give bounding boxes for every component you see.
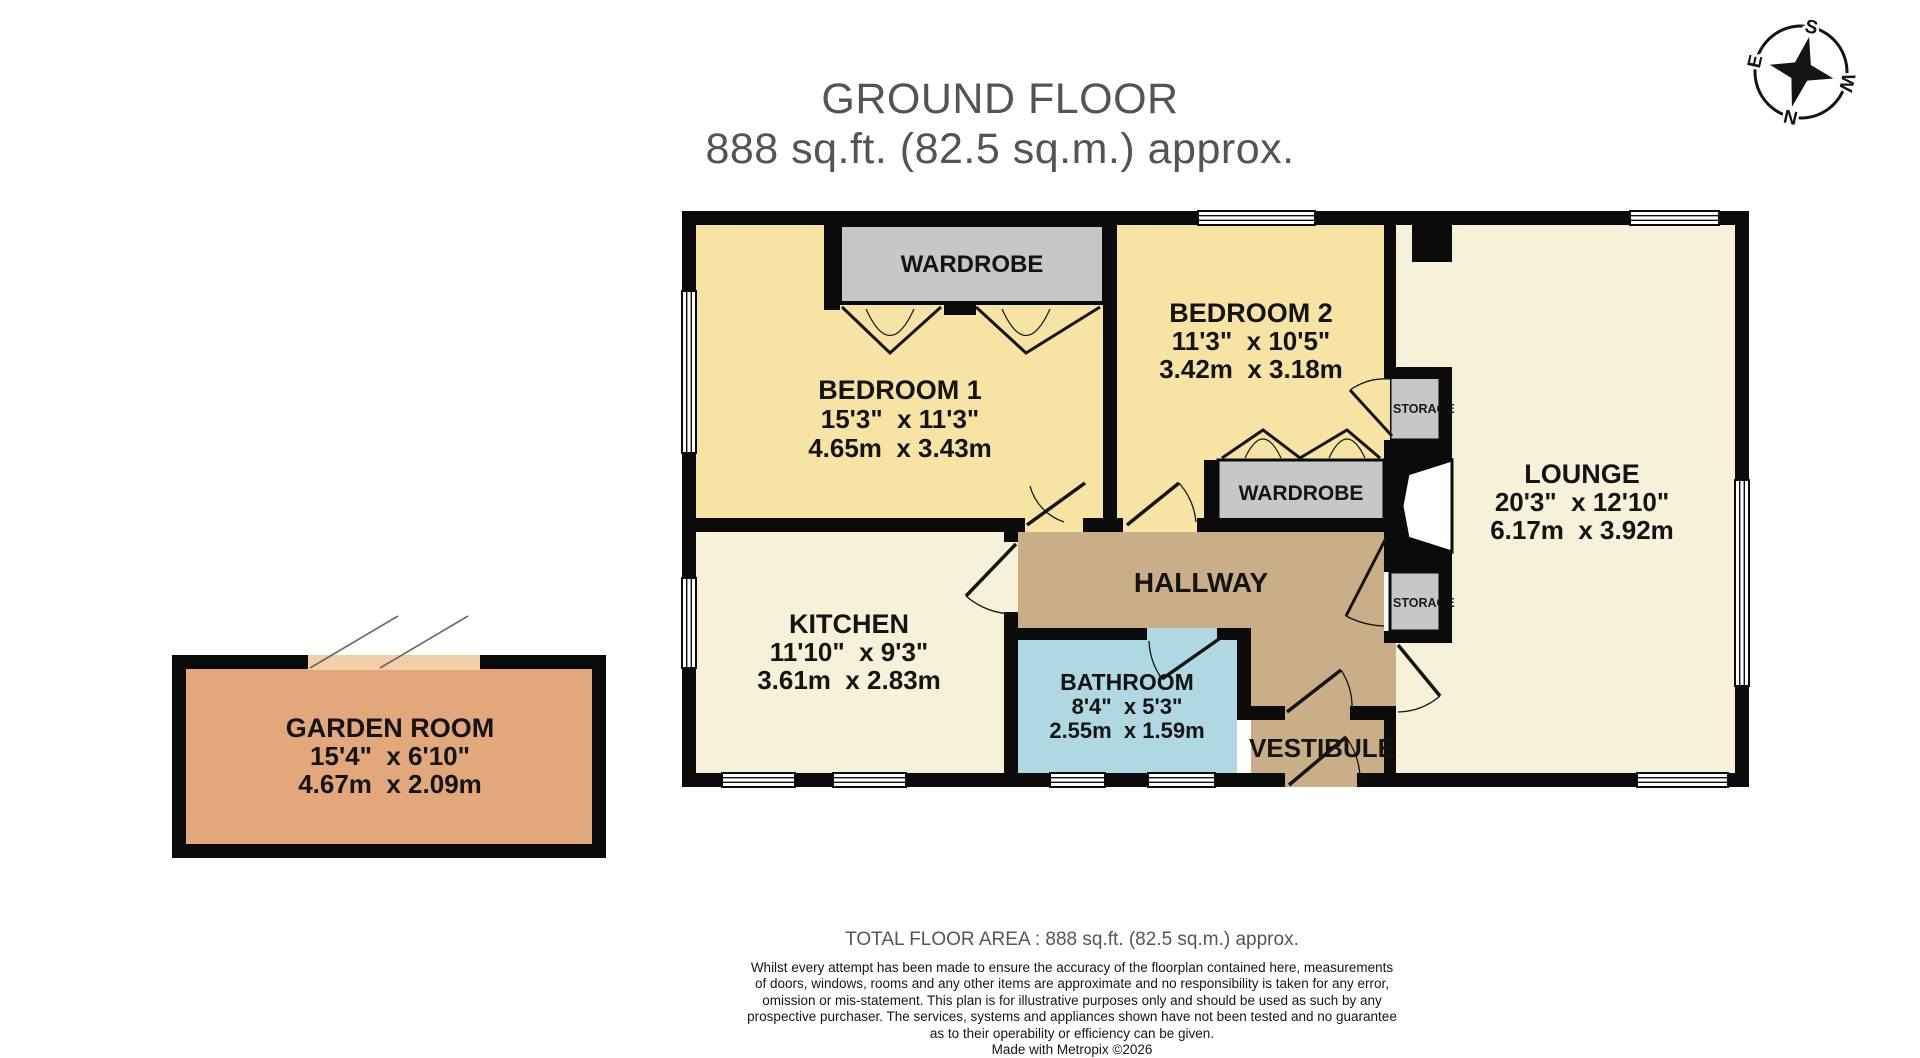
total-floor-area: TOTAL FLOOR AREA : 888 sq.ft. (82.5 sq.m… [662, 929, 1482, 951]
bedroom2-name: BEDROOM 2 [1169, 298, 1333, 328]
lounge-imperial: 20'3" x 12'10" [1495, 487, 1669, 517]
garden-room-metric: 4.67m x 2.09m [298, 769, 482, 799]
bedroom1-name: BEDROOM 1 [818, 375, 982, 405]
compass-west: W [1834, 71, 1859, 93]
garden-room-imperial: 15'4" x 6'10" [310, 741, 470, 771]
compass-south: S [1803, 16, 1820, 39]
lounge-name: LOUNGE [1524, 459, 1640, 489]
compass-north: N [1781, 107, 1799, 131]
compass-rose: S N W E [1732, 5, 1869, 142]
garden-room-opening [308, 655, 480, 670]
disclaimer-line: as to their operability or efficiency ca… [662, 1026, 1482, 1042]
bedroom1-imperial: 15'3" x 11'3" [821, 404, 979, 434]
garden-room-name: GARDEN ROOM [286, 713, 495, 743]
window [1637, 773, 1728, 787]
floorplan-drawing: STORAGE STORAGE [0, 0, 1920, 1047]
bedroom2-imperial: 11'3" x 10'5" [1172, 326, 1330, 356]
disclaimer-line: Whilst every attempt has been made to en… [662, 960, 1482, 976]
window [682, 291, 696, 453]
disclaimer-line: omission or mis-statement. This plan is … [662, 993, 1482, 1009]
window [722, 773, 795, 787]
disclaimer-line: prospective purchaser. The services, sys… [662, 1009, 1482, 1025]
window [1148, 773, 1215, 787]
lounge-splayed-opening [1402, 460, 1452, 552]
compass-needle-icon [1762, 30, 1842, 115]
window [1630, 211, 1719, 225]
kitchen-metric: 3.61m x 2.83m [757, 665, 941, 695]
bathroom-metric: 2.55m x 1.59m [1049, 718, 1204, 743]
bathroom-imperial: 8'4" x 5'3" [1072, 694, 1183, 719]
vestibule-name: VESTIBULE [1249, 733, 1395, 763]
hallway-name: HALLWAY [1134, 567, 1269, 598]
bedroom1-metric: 4.65m x 3.43m [808, 433, 992, 463]
window [1050, 773, 1105, 787]
footer: TOTAL FLOOR AREA : 888 sq.ft. (82.5 sq.m… [662, 929, 1482, 1058]
window [1735, 480, 1749, 686]
bathroom-name: BATHROOM [1060, 669, 1194, 695]
window [833, 773, 906, 787]
disclaimer-line: of doors, windows, rooms and any other i… [662, 976, 1482, 992]
window [1198, 211, 1315, 225]
bedroom2-metric: 3.42m x 3.18m [1159, 354, 1343, 384]
lounge-metric: 6.17m x 3.92m [1490, 515, 1674, 545]
window [682, 578, 696, 668]
wardrobe2-label: WARDROBE [1239, 482, 1364, 505]
wardrobe1-label: WARDROBE [901, 251, 1044, 278]
kitchen-imperial: 11'10" x 9'3" [770, 637, 928, 667]
kitchen-name: KITCHEN [789, 609, 909, 639]
compass-east: E [1744, 53, 1767, 70]
metropix-credit: Made with Metropix ©2026 [662, 1042, 1482, 1058]
